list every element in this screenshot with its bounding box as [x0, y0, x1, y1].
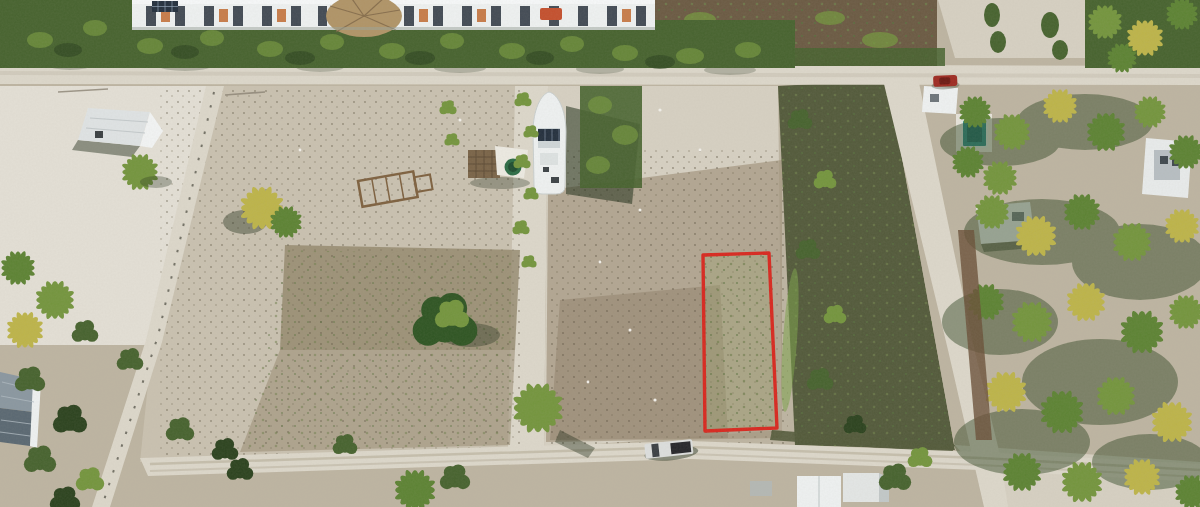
photo-grain-overlay: [0, 0, 1200, 507]
aerial-photo: [0, 0, 1200, 507]
aerial-photo-canvas: [0, 0, 1200, 507]
